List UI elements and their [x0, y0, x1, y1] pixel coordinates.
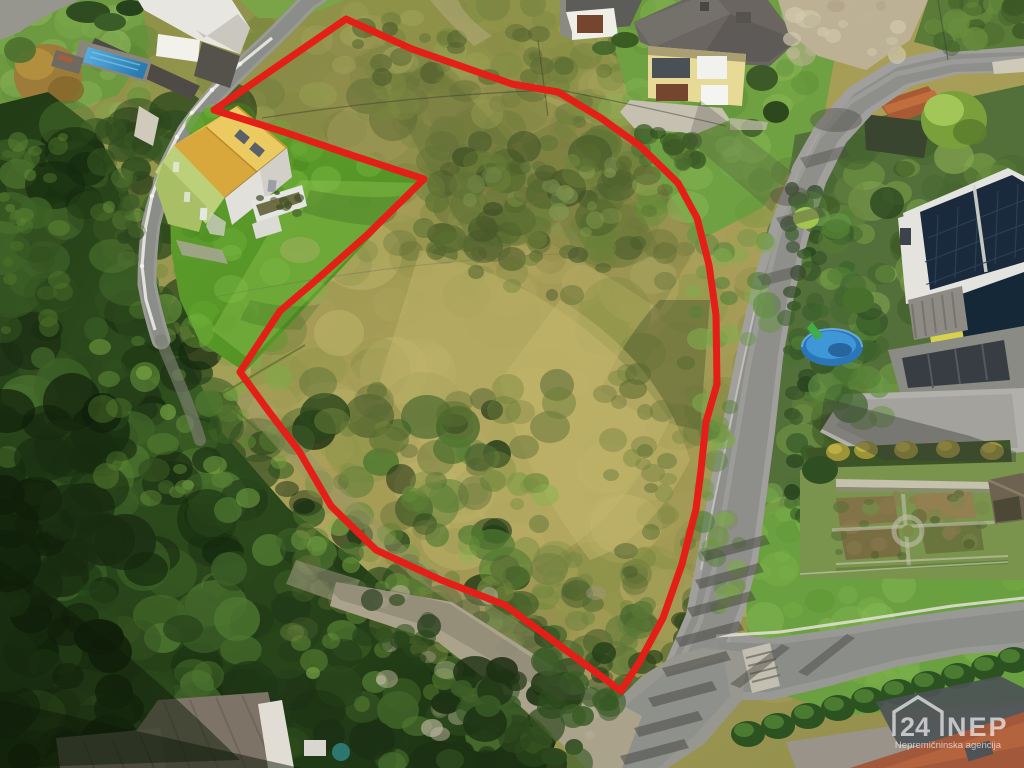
svg-text:Nepremičninska agencija: Nepremičninska agencija [895, 740, 1002, 751]
svg-text:NEP: NEP [947, 712, 1009, 742]
svg-text:24: 24 [900, 712, 930, 742]
